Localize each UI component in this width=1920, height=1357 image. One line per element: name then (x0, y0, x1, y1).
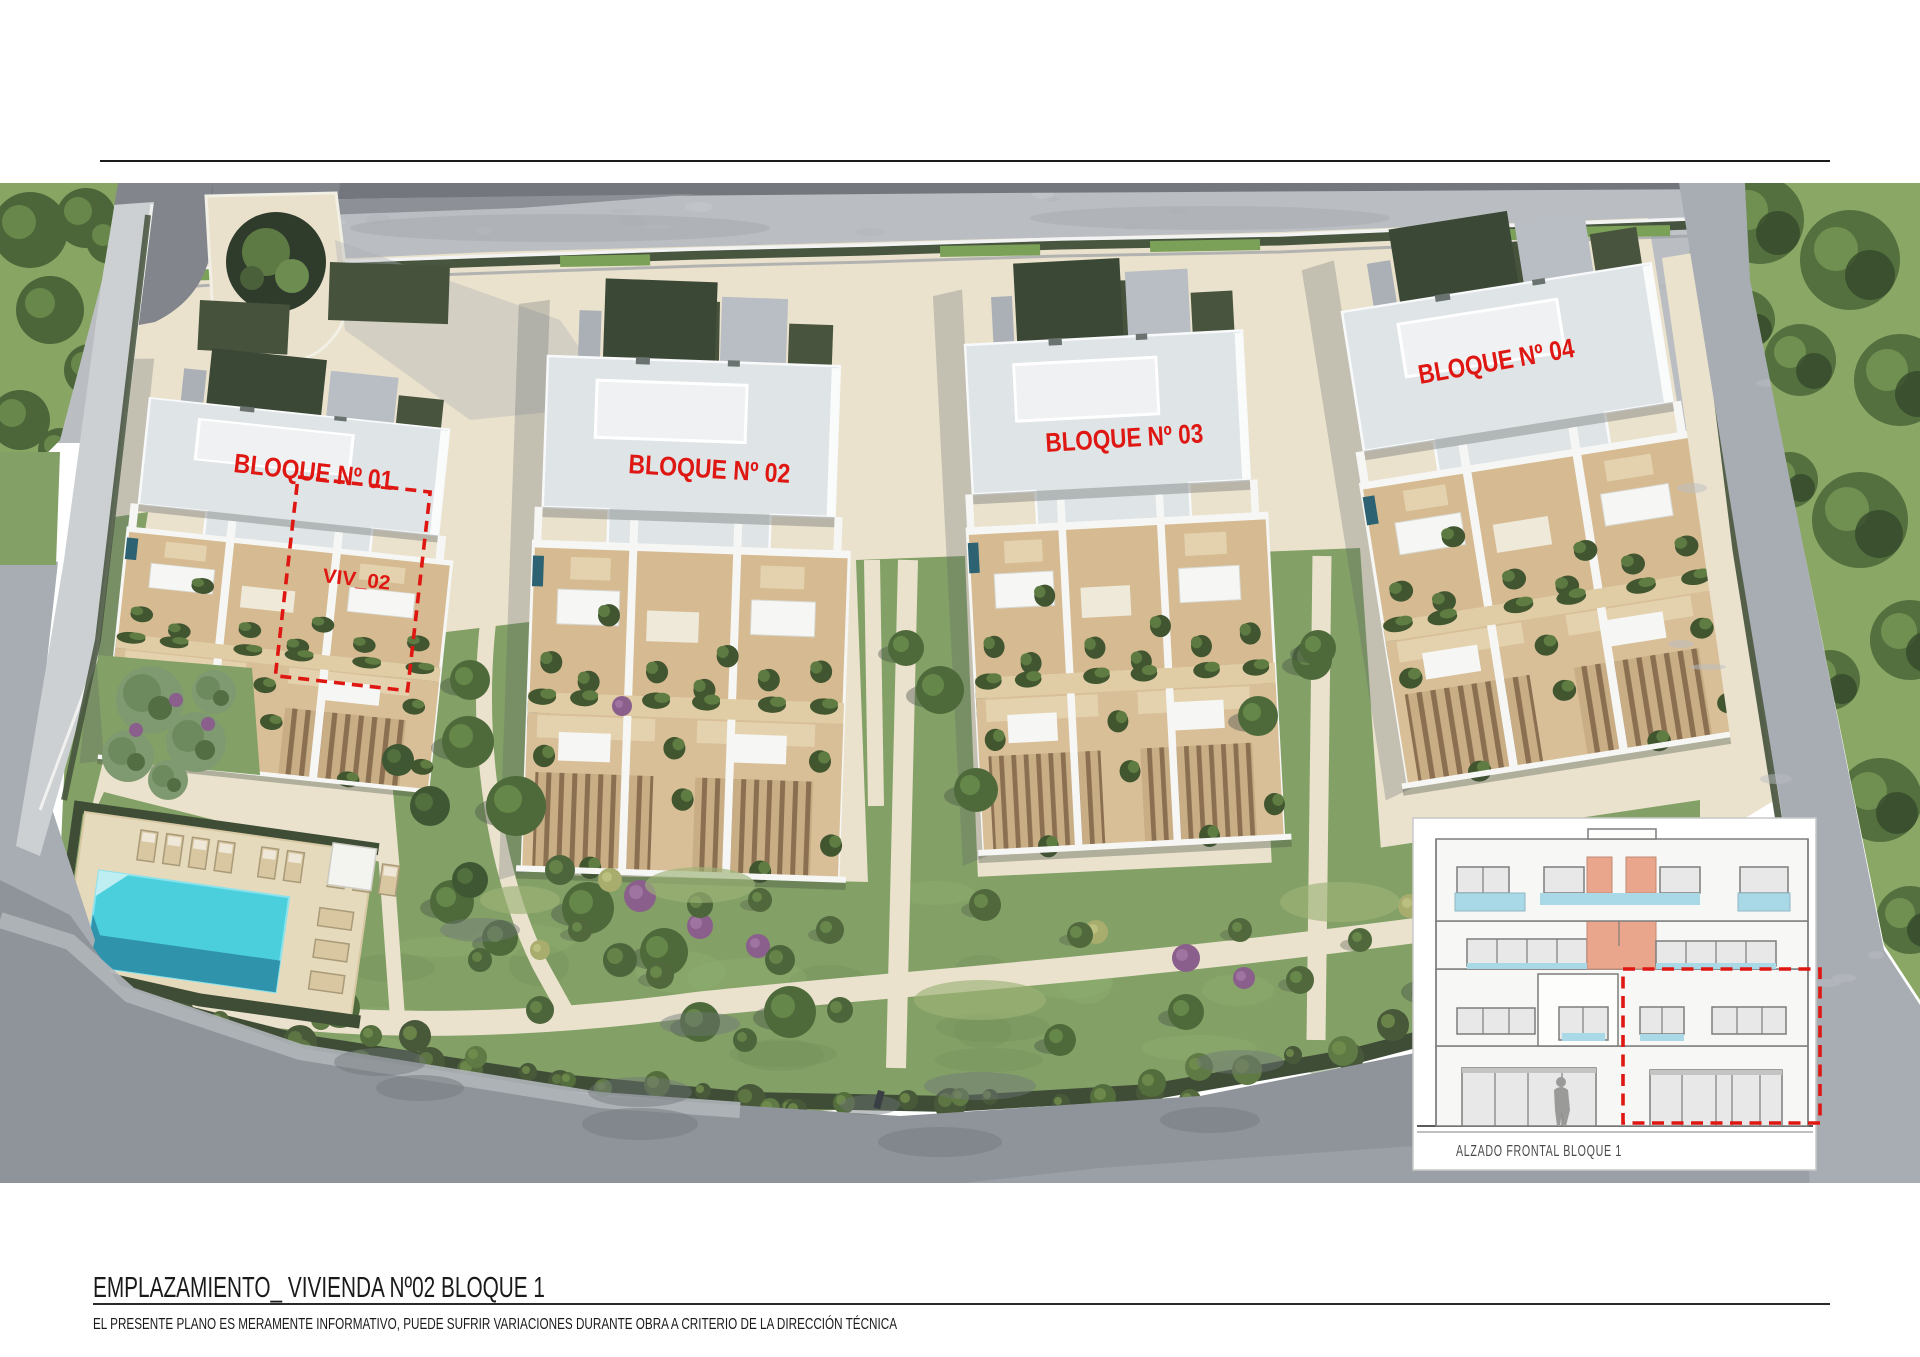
svg-text:EL PRESENTE PLANO ES MERAMENTE: EL PRESENTE PLANO ES MERAMENTE INFORMATI… (93, 1314, 897, 1333)
svg-text:EMPLAZAMIENTO_ VIVIENDA Nº02: EMPLAZAMIENTO_ VIVIENDA Nº02 BLOQUE 1 (93, 1272, 545, 1304)
svg-text:ALZADO FRONTAL BLOQUE 1: ALZADO FRONTAL BLOQUE 1 (1456, 1143, 1622, 1160)
